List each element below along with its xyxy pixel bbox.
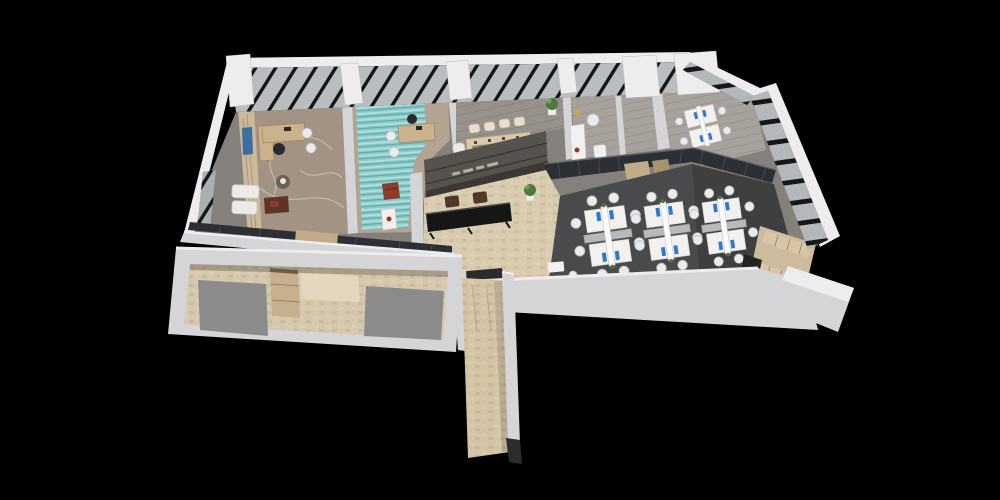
red-armchair: [382, 182, 400, 200]
guest-chair: [302, 128, 312, 138]
desk-monitor: [284, 127, 291, 131]
desk-chair: [407, 114, 417, 124]
pantry-box: [593, 144, 606, 157]
pantry-lamp: [574, 109, 580, 115]
reception-chair: [444, 195, 459, 208]
reception-plant: [524, 184, 536, 201]
restroom-tiles-right: [364, 286, 444, 340]
guest-chair: [386, 131, 396, 141]
printer-table: [548, 261, 565, 272]
kettle: [575, 148, 580, 153]
service-block: [168, 248, 462, 352]
wall-lounge-reception: [410, 172, 424, 252]
restroom-tiles-left: [198, 280, 268, 336]
guest-chair: [306, 143, 316, 153]
lounge-desk: [398, 123, 435, 143]
reception-chair: [472, 191, 487, 204]
wall-art-blue: [242, 127, 253, 155]
pantry-armchair: [587, 114, 599, 126]
executive-office: [232, 102, 348, 236]
bright-floor-patch: [300, 273, 360, 302]
desk-monitor: [416, 126, 422, 130]
meeting-plant: [546, 98, 558, 115]
render-canvas: [0, 0, 1000, 500]
table-tray: [270, 201, 279, 207]
restroom-cabinet: [270, 268, 300, 318]
exec-floor: [254, 102, 348, 234]
guest-chair: [389, 147, 399, 157]
pantry-counter: [570, 124, 586, 160]
floor-plan-render: [0, 0, 1000, 500]
exec-chair: [273, 143, 285, 155]
floor-art-frame: [381, 208, 397, 230]
